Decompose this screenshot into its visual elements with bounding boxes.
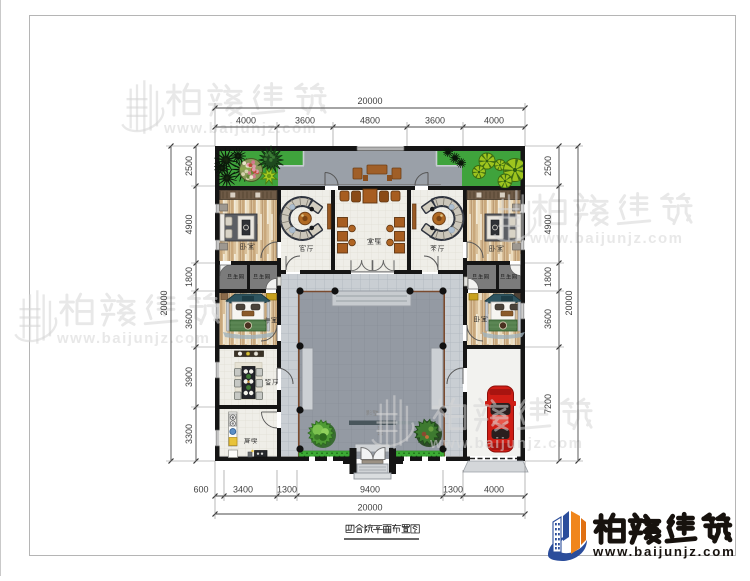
svg-text:3600: 3600 (184, 309, 194, 329)
svg-text:3900: 3900 (184, 367, 194, 387)
svg-text:www.baijunjz.com: www.baijunjz.com (429, 435, 583, 452)
svg-text:2500: 2500 (184, 156, 194, 176)
svg-text:4900: 4900 (184, 214, 194, 234)
svg-text:3600: 3600 (425, 116, 445, 126)
svg-text:600: 600 (193, 485, 208, 495)
svg-text:9400: 9400 (360, 485, 380, 495)
svg-text:1300: 1300 (443, 485, 463, 495)
svg-text:www.baijunjz.com: www.baijunjz.com (592, 544, 736, 559)
svg-text:20000: 20000 (357, 503, 382, 513)
svg-text:3600: 3600 (543, 309, 553, 329)
svg-text:1800: 1800 (184, 267, 194, 287)
svg-text:20000: 20000 (357, 96, 382, 106)
svg-text:20000: 20000 (159, 290, 169, 315)
svg-text:20000: 20000 (564, 290, 574, 315)
svg-text:4900: 4900 (543, 214, 553, 234)
svg-text:2500: 2500 (543, 156, 553, 176)
svg-text:3400: 3400 (233, 485, 253, 495)
svg-text:1800: 1800 (543, 267, 553, 287)
svg-text:www.baijunjz.com: www.baijunjz.com (56, 330, 210, 347)
svg-text:3300: 3300 (184, 424, 194, 444)
svg-text:1300: 1300 (277, 485, 297, 495)
svg-text:4000: 4000 (236, 116, 256, 126)
svg-text:4000: 4000 (484, 116, 504, 126)
svg-text:7200: 7200 (543, 394, 553, 414)
svg-text:3600: 3600 (295, 116, 315, 126)
svg-text:4800: 4800 (360, 116, 380, 126)
svg-text:4000: 4000 (484, 485, 504, 495)
